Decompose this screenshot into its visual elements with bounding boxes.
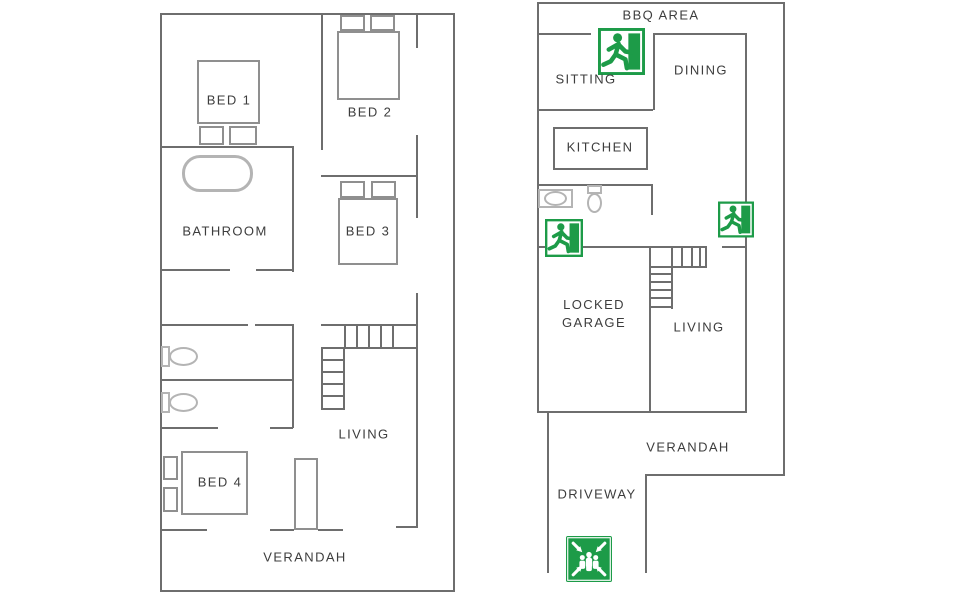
wall-segment (160, 379, 293, 381)
wall-segment (321, 347, 323, 410)
wall-segment (160, 13, 455, 15)
wall-segment (292, 146, 294, 272)
wall-segment (416, 135, 418, 218)
pillow-icon (340, 181, 365, 198)
room-label-sitting: SITTING (555, 72, 616, 87)
assembly-point-icon (566, 536, 612, 582)
bathtub-icon (182, 155, 253, 192)
wall-segment (160, 324, 248, 326)
wall-segment (321, 371, 345, 373)
wall-segment (691, 246, 693, 268)
wall-segment (537, 2, 785, 4)
exit-sign-icon (545, 216, 583, 260)
room-label-verandah-left: VERANDAH (263, 550, 346, 565)
wall-segment (722, 246, 747, 248)
pillow-icon (229, 126, 257, 145)
wall-segment (645, 474, 647, 573)
wall-segment (705, 246, 707, 268)
wall-segment (650, 273, 673, 275)
wall-segment (537, 109, 653, 111)
wall-segment (645, 474, 785, 476)
wall-segment (160, 269, 230, 271)
pillow-icon (199, 126, 224, 145)
room-label-bed3: BED 3 (346, 224, 391, 239)
wall-segment (547, 413, 549, 573)
wall-segment (270, 427, 293, 429)
exit-sign-icon (598, 28, 645, 75)
room-label-bed2: BED 2 (348, 105, 393, 120)
wall-segment (653, 33, 747, 35)
room-label-kitchen: KITCHEN (567, 140, 634, 155)
wall-segment (392, 324, 394, 349)
bed-icon (337, 31, 400, 100)
wall-segment (160, 13, 162, 592)
toilet-bowl-icon (169, 347, 198, 366)
wall-segment (321, 383, 345, 385)
pillow-icon (163, 487, 178, 512)
room-label-bbq-area: BBQ AREA (623, 8, 700, 23)
wall-segment (321, 13, 323, 150)
room-label-dining: DINING (674, 63, 728, 78)
wall-segment (396, 526, 418, 528)
wall-segment (321, 359, 345, 361)
exit-sign-icon (718, 197, 754, 242)
wall-segment (537, 411, 747, 413)
wall-segment (651, 184, 653, 215)
wall-segment (255, 324, 293, 326)
wall-segment (343, 347, 345, 410)
room-label-bed4: BED 4 (198, 475, 243, 490)
wall-segment (650, 297, 673, 299)
wall-segment (699, 246, 701, 268)
pillow-icon (371, 181, 396, 198)
pillar (294, 458, 318, 530)
wall-segment (650, 281, 673, 283)
room-label-driveway: DRIVEWAY (557, 487, 636, 502)
wall-segment (318, 529, 343, 531)
evacuation-plan-canvas: BED 1 BED 2 BATHROOM BED 3 LIVING BED 4 … (0, 0, 960, 600)
room-label-living-left: LIVING (338, 427, 389, 442)
room-label-bed1: BED 1 (207, 93, 252, 108)
wall-segment (650, 289, 673, 291)
wall-segment (160, 529, 207, 531)
pillow-icon (163, 456, 178, 480)
room-label-bathroom: BATHROOM (182, 224, 267, 239)
wall-segment (671, 246, 673, 268)
room-label-living-right: LIVING (673, 320, 724, 335)
wall-segment (256, 269, 293, 271)
wall-segment (160, 427, 218, 429)
wall-segment (650, 306, 673, 308)
sink-basin-icon (544, 191, 567, 206)
wall-segment (453, 13, 455, 592)
wall-segment (368, 324, 370, 349)
pillow-icon (370, 15, 395, 31)
wall-segment (416, 293, 418, 527)
room-label-verandah-right: VERANDAH (646, 440, 729, 455)
wall-segment (649, 246, 651, 413)
wall-segment (160, 590, 455, 592)
wall-segment (321, 408, 345, 410)
wall-segment (681, 246, 683, 268)
wall-segment (344, 324, 346, 349)
wall-segment (653, 33, 655, 110)
room-label-locked-garage: LOCKED GARAGE (548, 296, 640, 332)
wall-segment (292, 324, 294, 428)
wall-segment (380, 324, 382, 349)
wall-segment (321, 395, 345, 397)
wall-segment (356, 324, 358, 349)
wall-segment (160, 146, 293, 148)
wall-segment (537, 33, 591, 35)
pillow-icon (340, 15, 365, 31)
toilet-bowl-icon (587, 193, 602, 213)
wall-segment (783, 2, 785, 476)
wall-segment (270, 529, 294, 531)
wall-segment (321, 175, 418, 177)
toilet-bowl-icon (169, 393, 198, 412)
wall-segment (416, 13, 418, 48)
